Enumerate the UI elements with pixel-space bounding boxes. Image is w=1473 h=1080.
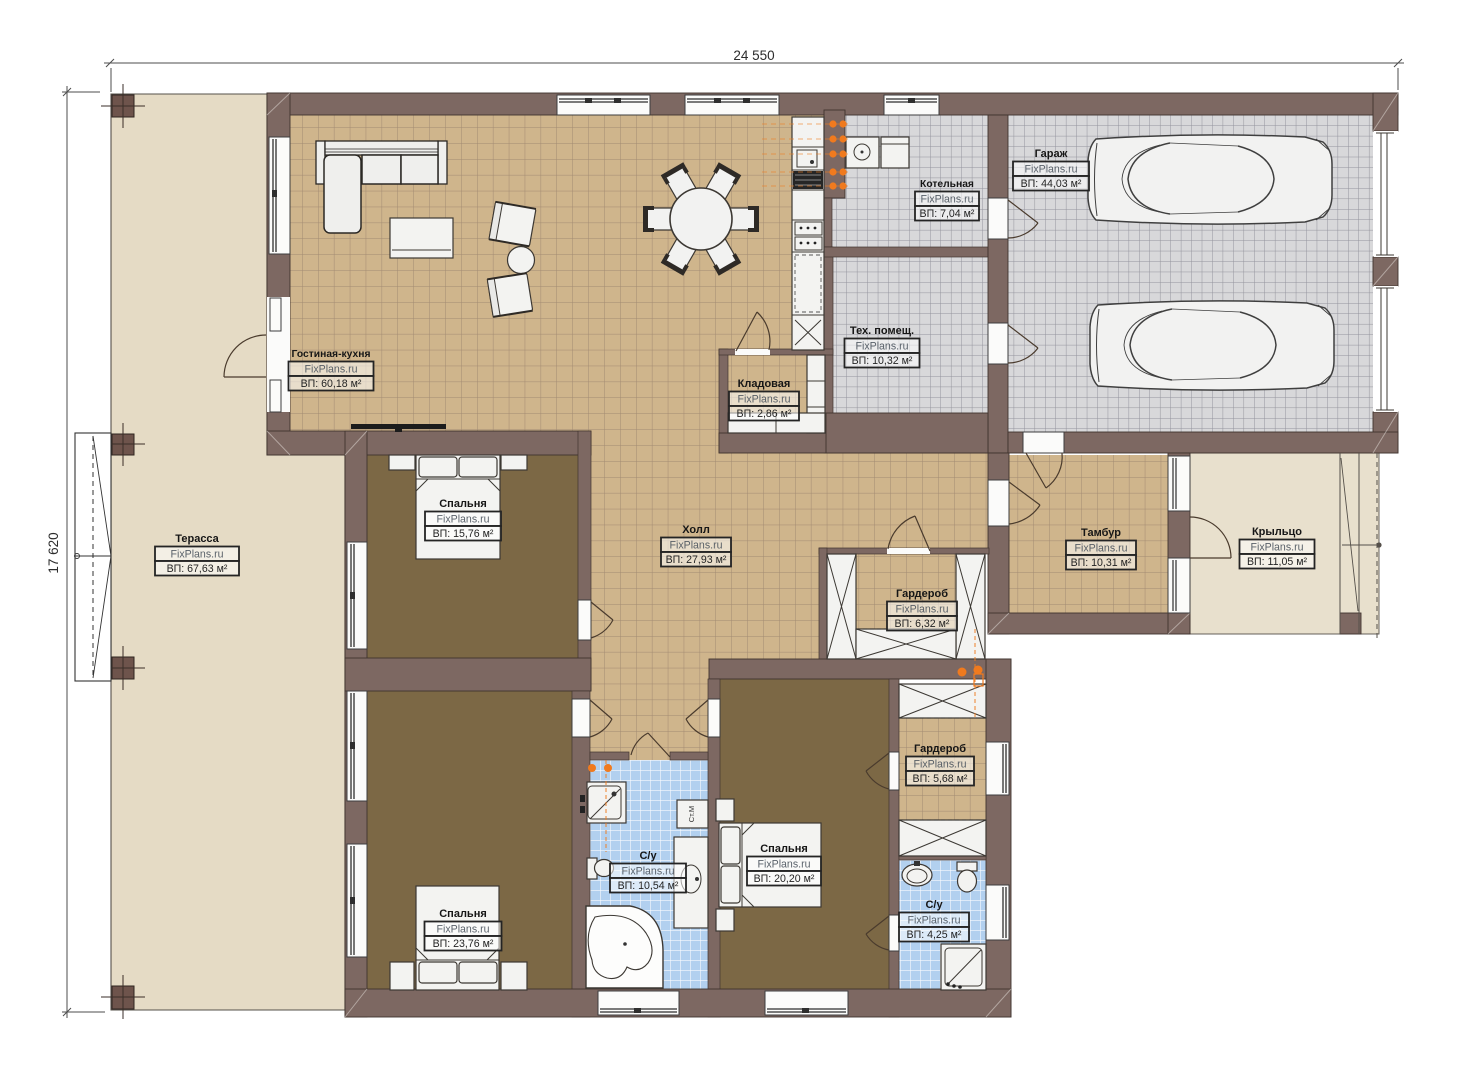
svg-text:FixPlans.ru: FixPlans.ru — [171, 549, 224, 561]
svg-text:FixPlans.ru: FixPlans.ru — [758, 859, 811, 871]
svg-text:ВП: 23,76 м²: ВП: 23,76 м² — [433, 938, 494, 950]
svg-text:ВП: 5,68 м²: ВП: 5,68 м² — [913, 773, 968, 785]
svg-text:ВП: 20,20 м²: ВП: 20,20 м² — [754, 873, 815, 885]
svg-text:С/у: С/у — [925, 899, 943, 911]
svg-text:ВП: 11,05 м²: ВП: 11,05 м² — [1247, 556, 1308, 568]
svg-text:ВП: 10,54 м²: ВП: 10,54 м² — [618, 880, 679, 892]
svg-text:FixPlans.ru: FixPlans.ru — [738, 394, 791, 406]
svg-text:FixPlans.ru: FixPlans.ru — [1075, 543, 1128, 555]
svg-text:Гардероб: Гардероб — [914, 743, 966, 755]
svg-text:FixPlans.ru: FixPlans.ru — [908, 915, 961, 927]
svg-text:FixPlans.ru: FixPlans.ru — [921, 194, 974, 206]
svg-text:FixPlans.ru: FixPlans.ru — [1025, 164, 1078, 176]
svg-text:Спальня: Спальня — [439, 498, 487, 510]
svg-text:ВП: 60,18 м²: ВП: 60,18 м² — [301, 378, 362, 390]
svg-text:Тамбур: Тамбур — [1081, 527, 1121, 539]
svg-text:FixPlans.ru: FixPlans.ru — [896, 604, 949, 616]
svg-text:Гараж: Гараж — [1035, 148, 1068, 160]
svg-text:ВП: 44,03 м²: ВП: 44,03 м² — [1021, 178, 1082, 190]
svg-text:ВП: 6,32 м²: ВП: 6,32 м² — [895, 618, 950, 630]
svg-text:Котельная: Котельная — [920, 179, 974, 190]
svg-text:Холл: Холл — [682, 524, 710, 536]
svg-text:ВП: 10,31 м²: ВП: 10,31 м² — [1071, 557, 1132, 569]
svg-text:FixPlans.ru: FixPlans.ru — [1251, 542, 1304, 554]
svg-text:24 550: 24 550 — [733, 48, 774, 63]
svg-text:FixPlans.ru: FixPlans.ru — [622, 866, 675, 878]
svg-text:ВП: 7,04 м²: ВП: 7,04 м² — [920, 208, 975, 220]
svg-text:Ст.М: Ст.М — [687, 806, 696, 822]
svg-text:Гостиная-кухня: Гостиная-кухня — [292, 349, 371, 360]
svg-text:ВП: 27,93 м²: ВП: 27,93 м² — [666, 554, 727, 566]
svg-text:ВП: 4,25 м²: ВП: 4,25 м² — [907, 929, 962, 941]
svg-text:FixPlans.ru: FixPlans.ru — [437, 924, 490, 936]
svg-text:ВП: 2,86 м²: ВП: 2,86 м² — [737, 408, 792, 420]
svg-text:FixPlans.ru: FixPlans.ru — [437, 514, 490, 526]
svg-text:Тех. помещ.: Тех. помещ. — [850, 325, 914, 337]
svg-text:FixPlans.ru: FixPlans.ru — [305, 364, 358, 376]
svg-text:FixPlans.ru: FixPlans.ru — [856, 341, 909, 353]
svg-text:Гардероб: Гардероб — [896, 588, 948, 600]
svg-text:Спальня: Спальня — [439, 908, 487, 920]
svg-text:С/у: С/у — [639, 850, 657, 862]
svg-text:FixPlans.ru: FixPlans.ru — [670, 540, 723, 552]
svg-text:Крыльцо: Крыльцо — [1252, 526, 1302, 538]
svg-text:ВП: 15,76 м²: ВП: 15,76 м² — [433, 528, 494, 540]
svg-text:Кладовая: Кладовая — [738, 378, 791, 390]
svg-text:FixPlans.ru: FixPlans.ru — [914, 759, 967, 771]
svg-text:Спальня: Спальня — [760, 843, 808, 855]
svg-text:ВП: 67,63 м²: ВП: 67,63 м² — [167, 563, 228, 575]
svg-text:17 620: 17 620 — [46, 532, 61, 573]
svg-text:Терасса: Терасса — [175, 533, 219, 545]
svg-text:ВП: 10,32 м²: ВП: 10,32 м² — [852, 355, 913, 367]
